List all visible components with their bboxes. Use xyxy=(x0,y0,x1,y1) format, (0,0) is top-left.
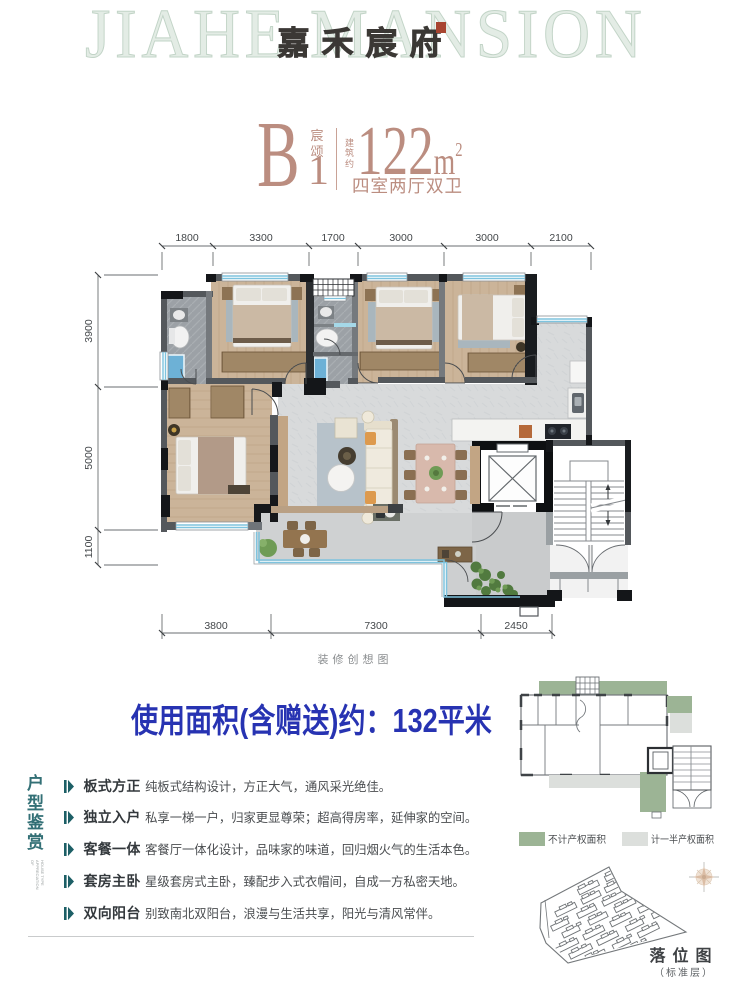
svg-text:3800: 3800 xyxy=(204,620,228,632)
svg-text:落位图: 落位图 xyxy=(649,946,718,965)
svg-text:2450: 2450 xyxy=(504,620,528,632)
svg-text:5000: 5000 xyxy=(83,446,95,470)
svg-text:3000: 3000 xyxy=(389,232,413,244)
svg-text:3000: 3000 xyxy=(475,232,499,244)
svg-text:3300: 3300 xyxy=(249,232,273,244)
svg-text:装修创想图: 装修创想图 xyxy=(318,652,393,666)
svg-text:2100: 2100 xyxy=(549,232,573,244)
svg-text:3900: 3900 xyxy=(83,319,95,343)
svg-text:7300: 7300 xyxy=(364,620,388,632)
svg-text:1100: 1100 xyxy=(83,536,95,559)
svg-text:1800: 1800 xyxy=(175,232,199,244)
svg-text:1700: 1700 xyxy=(321,232,345,244)
svg-text:（标准层）: （标准层） xyxy=(654,967,714,979)
